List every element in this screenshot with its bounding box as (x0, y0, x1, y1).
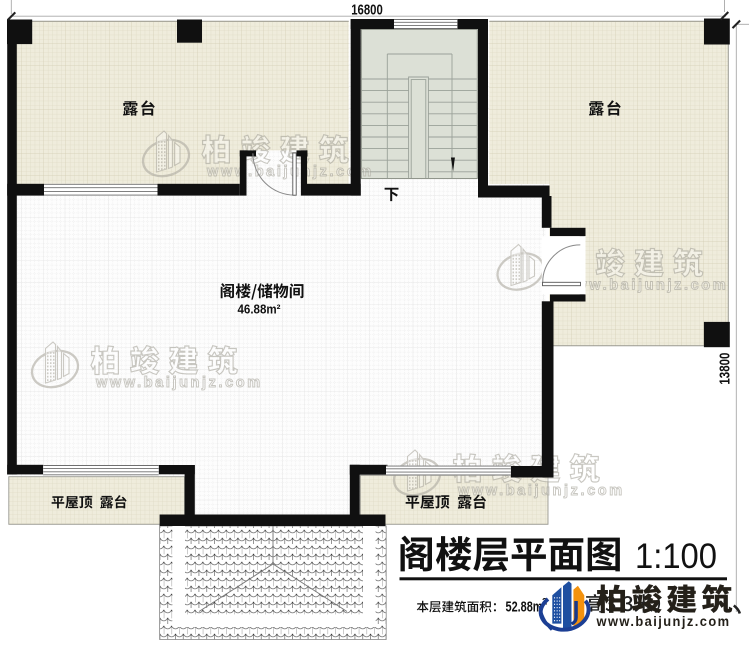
svg-text:13800: 13800 (717, 353, 733, 385)
svg-text:www.baijunjz.com: www.baijunjz.com (596, 614, 731, 629)
svg-text:www.baijunjz.com: www.baijunjz.com (561, 278, 729, 294)
svg-text:16800: 16800 (351, 3, 383, 19)
svg-text:46.88m²: 46.88m² (238, 302, 282, 317)
svg-text:1:100: 1:100 (635, 537, 717, 576)
svg-text:www.baijunjz.com: www.baijunjz.com (206, 164, 374, 180)
svg-text:52.88m: 52.88m (506, 600, 543, 616)
svg-text:www.baijunjz.com: www.baijunjz.com (95, 375, 263, 391)
